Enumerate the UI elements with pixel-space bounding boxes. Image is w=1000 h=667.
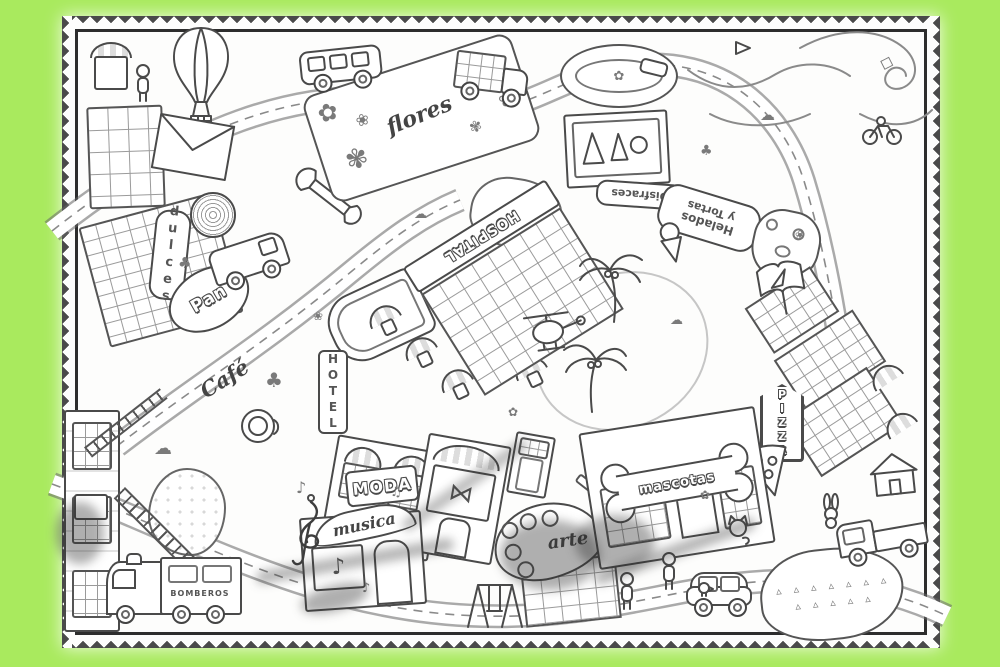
coffee-cup-icon [238,406,284,448]
bookshop-sign [751,254,815,322]
roundabout: ✿ [560,44,678,108]
sprout-icon: ▵ [795,600,802,612]
bush-icon: ♣ [700,144,713,158]
cyclist-icon [861,116,903,146]
sprout-icon: ▵ [775,585,782,597]
sprout-icon: ▵ [793,583,800,595]
fire-truck: BOMBEROS [106,537,240,627]
sprout-icon: ▵ [812,599,819,611]
fire-truck-wheel [116,605,135,624]
person-icon [616,572,638,612]
street-stand [90,42,130,90]
sprout-icon: ▵ [830,597,837,609]
petal-icon: ✾ [467,118,484,136]
hotel-sign-label: HOTEL [327,352,339,432]
cloud-icon: ☁ [154,440,172,458]
sprout-icon: ▵ [845,578,852,590]
photo-shadow [56,502,104,564]
bomberos-label: BOMBEROS [164,589,236,598]
moda-sign-label: MODA [352,473,413,498]
fire-truck-wheel [172,605,191,624]
blossom-icon: ❀ [313,310,323,322]
bus-window [350,51,369,68]
lollipop-icon [190,192,236,238]
bush-icon: ♣ [265,370,283,390]
flower-icon: ✿ [700,489,710,501]
music-note-icon: ♪ [296,480,306,496]
cloud-icon: ☁ [414,208,427,221]
cloud-icon: ☁ [760,108,775,123]
coloring-poster: dulces Pan Café HOTEL ✿ ❀ ✾ ✿ ❀ ✾ flores [62,16,940,648]
fire-truck-windshield [112,569,136,589]
sprout-icon: ▵ [880,574,887,586]
sprout-icon: ▵ [863,576,870,588]
hotel-sign: HOTEL [318,350,348,434]
shop-door [434,516,472,559]
blossom-icon: ❀ [795,229,805,241]
cloud-icon: ☁ [670,314,683,327]
fire-truck-panel [168,565,198,583]
blossom-icon: ❀ [354,111,372,130]
fire-truck-panel [202,565,232,583]
bus-window [329,53,348,70]
flores-sign-label: flores [383,91,456,141]
music-notes-icon: ♫ [390,486,402,499]
palm-tree-icon [578,248,652,326]
flower-icon: ✿ [508,406,518,418]
flower-icon: ✿ [614,70,625,83]
fire-truck-wheel [206,605,225,624]
bush-icon: ♣ [178,256,191,271]
stand-body [94,56,128,90]
fire-truck-beacon [126,553,142,565]
helicopter-icon [521,304,591,358]
moda-sign: MODA [344,464,419,507]
sprout-icon: ▵ [810,582,817,594]
sprout-icon: ▵ [828,580,835,592]
bus-window [307,56,326,73]
sprout-icon: ▵ [864,593,871,605]
city-bus [298,42,382,94]
house-icon [866,449,923,500]
swing-set-icon [462,577,528,631]
box-truck [451,50,531,109]
petal-icon: ✾ [342,143,372,176]
costume-dresses-icon [582,128,650,165]
photo-background: { "scene": { "background_color": "#a9ea5… [0,0,1000,667]
bird-icon [696,581,714,597]
sprout-icon: ▵ [847,595,854,607]
person-icon [132,64,154,104]
costume-shop [563,109,671,188]
flower-icon: ✿ [315,98,342,127]
